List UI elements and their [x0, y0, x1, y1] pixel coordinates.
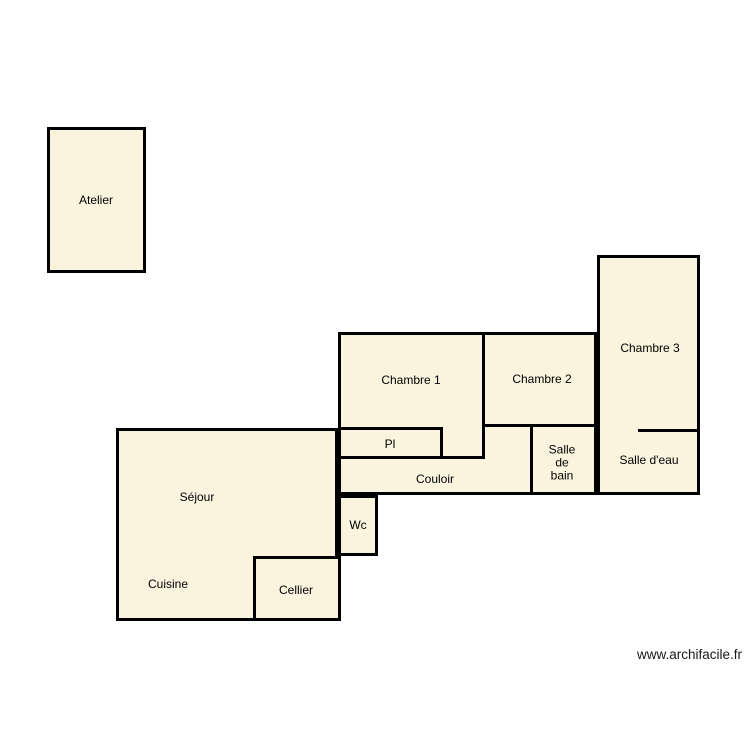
room-label-chambre-2: Chambre 2 — [512, 372, 571, 386]
room-label-chambre-1: Chambre 1 — [381, 373, 440, 387]
room-label-chambre-3: Chambre 3 — [620, 341, 679, 355]
archifacile-watermark: www.archifacile.fr — [637, 647, 742, 662]
room-label-wc: Wc — [349, 518, 366, 532]
room-label-sejour: Séjour — [180, 490, 215, 504]
room-label-salle-deau: Salle d'eau — [619, 453, 678, 467]
room-label-atelier: Atelier — [79, 193, 113, 207]
room-label-salle-de-bain: Salle de bain — [549, 444, 576, 483]
wall-chambre3-salle-deau-divider — [638, 429, 697, 432]
room-label-couloir: Couloir — [416, 472, 454, 486]
room-label-cuisine: Cuisine — [148, 577, 188, 591]
room-label-placard: Pl — [385, 437, 396, 451]
floor-plan-canvas: Atelier Chambre 1 Chambre 2 Chambre 3 Pl… — [0, 0, 750, 750]
room-label-cellier: Cellier — [279, 583, 313, 597]
